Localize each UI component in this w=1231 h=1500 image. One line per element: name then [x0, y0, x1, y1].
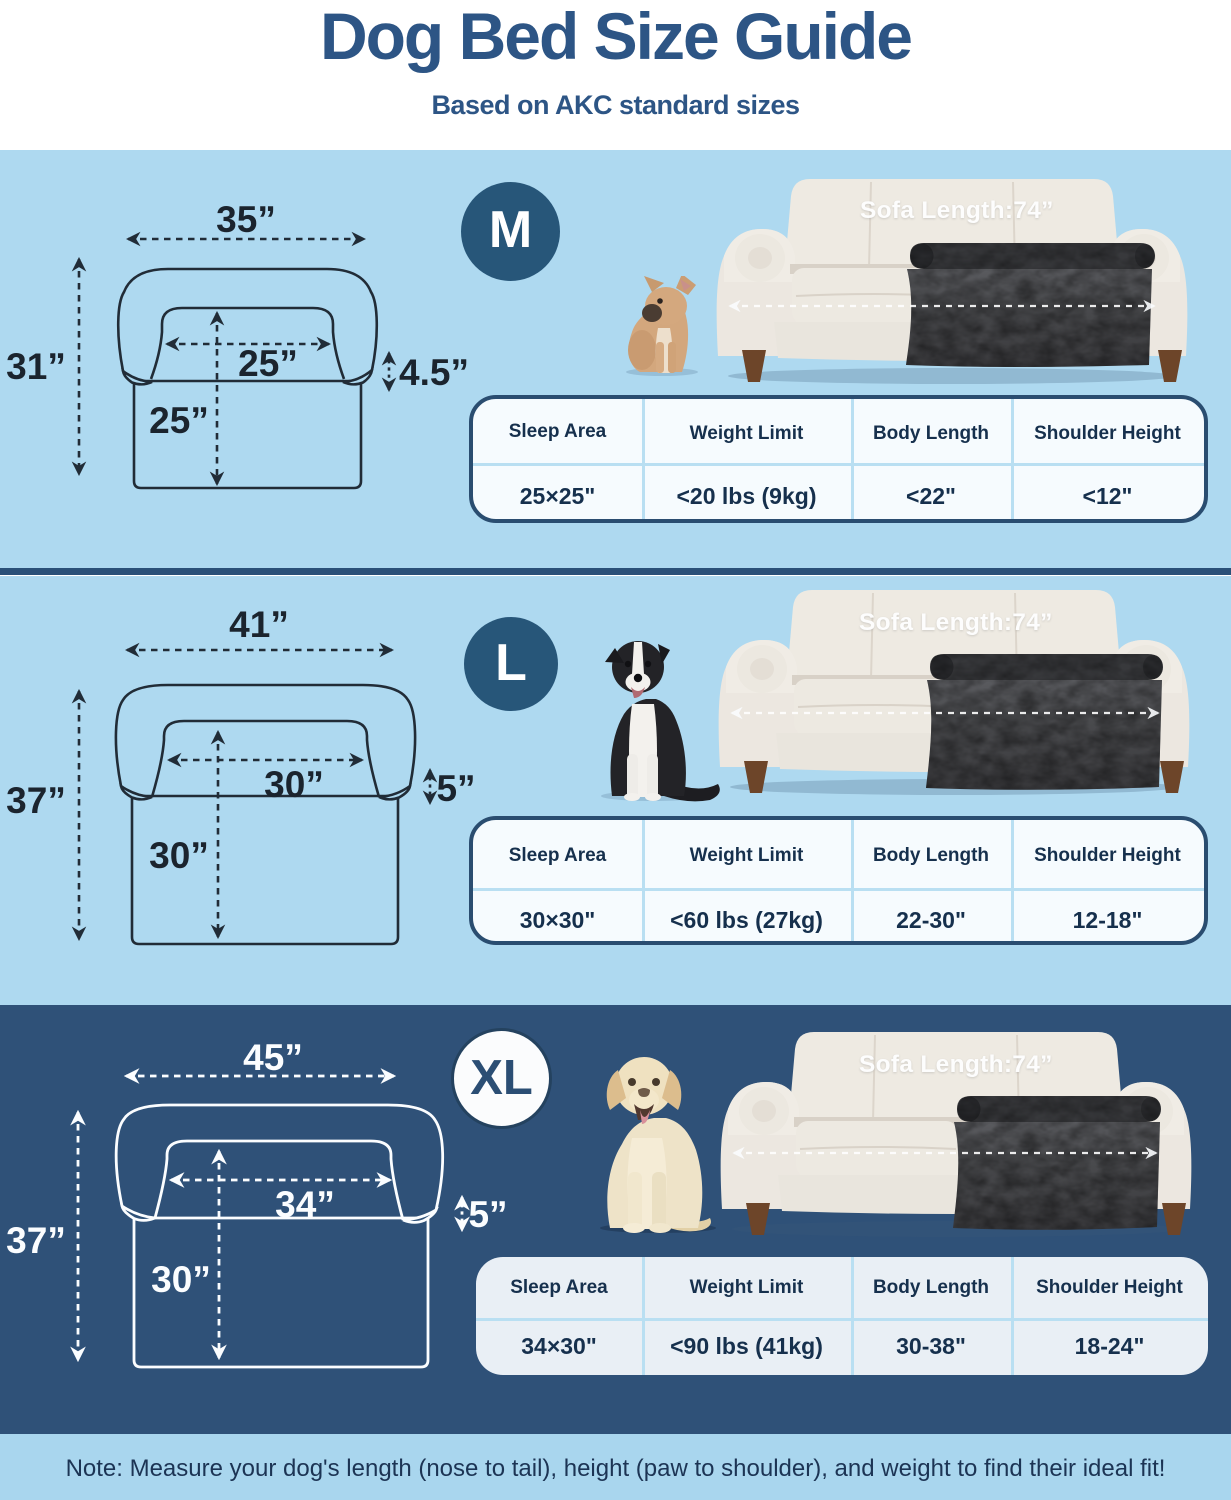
svg-text:41”: 41”	[229, 604, 289, 645]
svg-text:37”: 37”	[6, 780, 66, 821]
svg-text:31”: 31”	[6, 346, 66, 387]
svg-text:45”: 45”	[243, 1037, 303, 1078]
svg-text:30”: 30”	[151, 1259, 211, 1300]
svg-text:34”: 34”	[275, 1184, 335, 1225]
svg-text:4.5”: 4.5”	[399, 352, 469, 393]
svg-text:30”: 30”	[264, 764, 324, 805]
svg-text:25”: 25”	[149, 400, 209, 441]
svg-text:30”: 30”	[149, 835, 209, 876]
svg-text:37”: 37”	[6, 1220, 66, 1261]
svg-text:5”: 5”	[436, 768, 475, 809]
svg-text:35”: 35”	[216, 199, 276, 240]
svg-text:5”: 5”	[468, 1194, 507, 1235]
svg-text:25”: 25”	[238, 343, 298, 384]
